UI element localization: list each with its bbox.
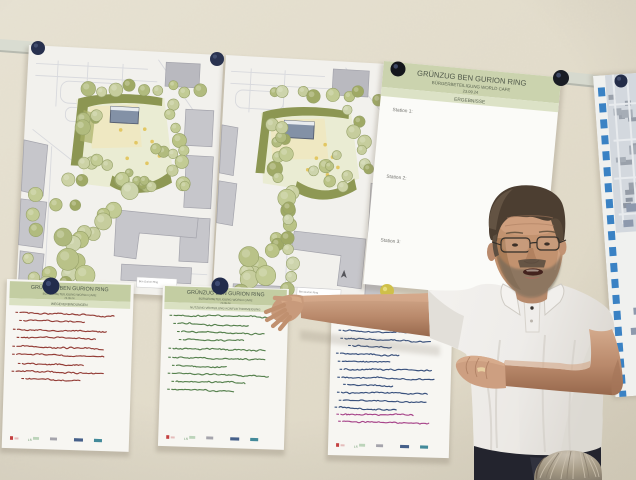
svg-text:LS: LS: [184, 437, 188, 441]
svg-text:23.09.24: 23.09.24: [64, 296, 75, 300]
svg-text:LS: LS: [354, 445, 358, 449]
svg-text:LS: LS: [28, 438, 32, 442]
svg-text:23.09.24: 23.09.24: [220, 301, 231, 305]
